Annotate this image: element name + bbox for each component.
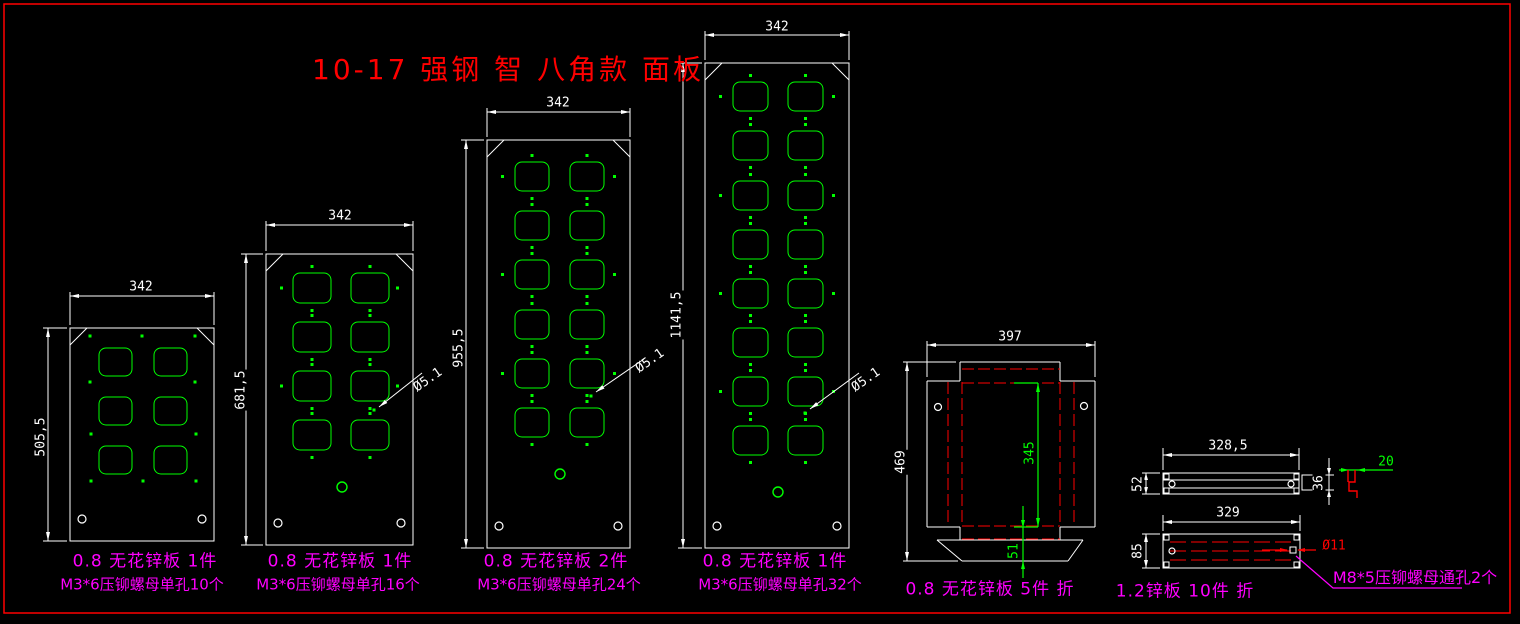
bar-bottom-length-dim: 329 <box>1216 507 1239 520</box>
panel1-caption-fastener: M3*6压铆螺母单孔10个 <box>60 578 224 593</box>
bar-bottom-hole-dim: Ø11 <box>1322 540 1345 553</box>
bar-bottom-height-dim: 85 <box>1132 542 1145 560</box>
tray-flap-height-dim: 51 <box>1008 542 1021 560</box>
tray-height-dim: 469 <box>895 449 908 474</box>
panel1-width-dim: 342 <box>129 281 152 294</box>
panel2-caption-fastener: M3*6压铆螺母单孔16个 <box>256 578 420 593</box>
panel3-caption-fastener: M3*6压铆螺母单孔24个 <box>477 578 641 593</box>
panel1-height-dim: 505,5 <box>35 416 48 457</box>
bar-bottom-rivet-note: M8*5压铆螺母通孔2个 <box>1333 570 1497 586</box>
bar-caption: 1.2锌板 10件 折 <box>1116 584 1254 601</box>
bar-top-length-dim: 328,5 <box>1208 440 1247 453</box>
bar-top-end-height-dim: 36 <box>1313 474 1326 492</box>
panel4-width-dim: 342 <box>765 21 788 34</box>
bar-top-height-dim: 52 <box>1132 475 1145 493</box>
panel4-caption-material: 0.8 无花锌板 1件 <box>703 554 848 571</box>
panel2-width-dim: 342 <box>328 210 351 223</box>
panel2-height-dim: 681,5 <box>235 369 248 410</box>
panel3-height-dim: 955,5 <box>453 327 466 368</box>
tray-caption: 0.8 无花锌板 5件 折 <box>905 582 1074 599</box>
tray-width-dim: 397 <box>998 331 1021 344</box>
drawing-title: 10-17 强钢 智 八角款 面板 <box>312 56 704 84</box>
cad-canvas: 10-17 强钢 智 八角款 面板 342 505,5 0.8 无花锌板 1件 … <box>0 0 1520 624</box>
tray-opening-height-dim: 345 <box>1024 440 1037 465</box>
panel4-caption-fastener: M3*6压铆螺母单孔32个 <box>698 578 862 593</box>
bar-top-flange-dim: 20 <box>1377 456 1395 469</box>
panel2-caption-material: 0.8 无花锌板 1件 <box>268 554 413 571</box>
cad-linework <box>0 0 1520 624</box>
panel1-caption-material: 0.8 无花锌板 1件 <box>73 554 218 571</box>
panel4-height-dim: 1141,5 <box>671 291 684 340</box>
panel3-caption-material: 0.8 无花锌板 2件 <box>484 554 629 571</box>
panel3-width-dim: 342 <box>546 97 569 110</box>
